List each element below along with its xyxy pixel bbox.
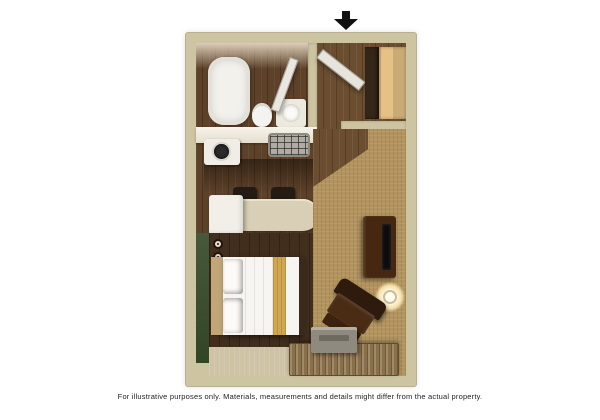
cooktop [268, 133, 310, 157]
tv-screen [382, 224, 391, 270]
bed-duvet-folds [245, 257, 273, 335]
bed-headboard [211, 257, 223, 335]
toilet [252, 103, 272, 127]
console-tv [311, 327, 357, 353]
tv-stand [363, 216, 396, 278]
entrance-arrow-head-icon [334, 19, 358, 30]
disclaimer-text: For illustrative purposes only. Material… [0, 392, 600, 401]
closet-interior [365, 47, 379, 119]
breakfast-bar [241, 199, 319, 231]
bathtub [208, 57, 250, 125]
bed-pillow-2 [223, 298, 243, 333]
green-accent-wall [196, 233, 209, 363]
bathroom-sink [282, 104, 300, 122]
floor-plan-image: For illustrative purposes only. Material… [0, 0, 600, 420]
closet-door [379, 47, 406, 119]
side-table [383, 290, 397, 304]
console-tv-vent [319, 335, 349, 341]
bed-pillow-1 [223, 259, 243, 294]
bed-footboard [299, 257, 307, 335]
refrigerator [209, 195, 243, 235]
kitchen-sink-basin [214, 144, 229, 159]
wall-light-icon-1 [213, 239, 223, 249]
bed-runner [273, 257, 286, 335]
floor-plan [185, 32, 417, 387]
